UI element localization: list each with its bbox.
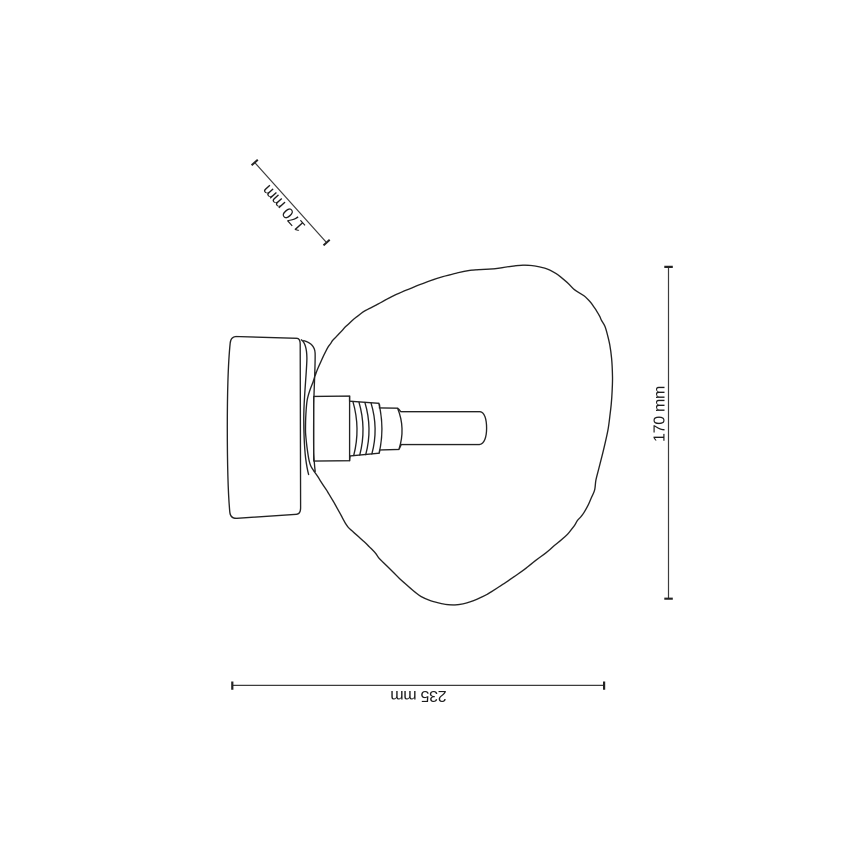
svg-text:235 mm: 235 mm bbox=[391, 687, 447, 704]
svg-text:170 mm: 170 mm bbox=[652, 386, 669, 442]
